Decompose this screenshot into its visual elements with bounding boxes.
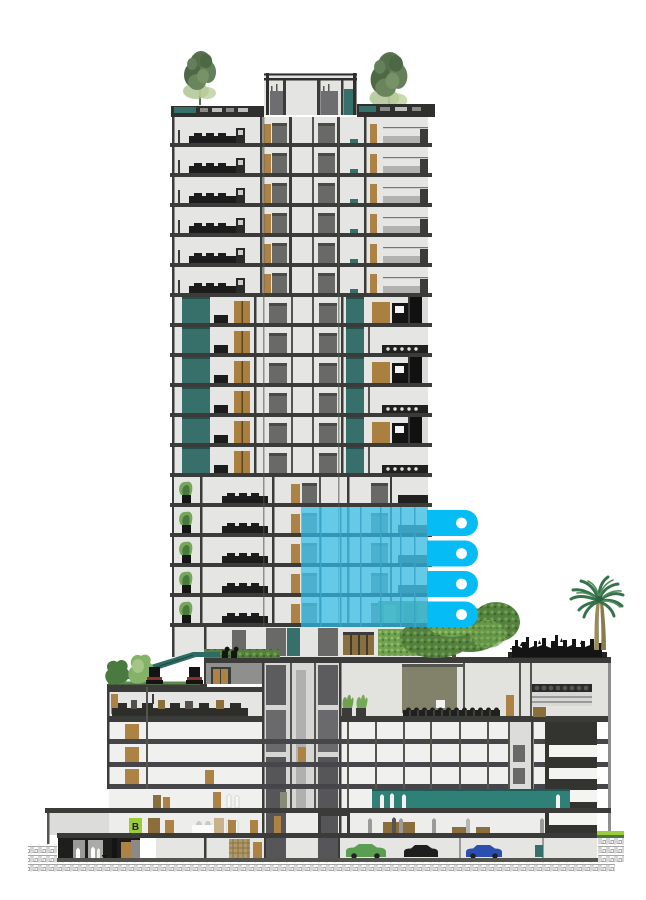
svg-text:B: B — [132, 822, 139, 833]
